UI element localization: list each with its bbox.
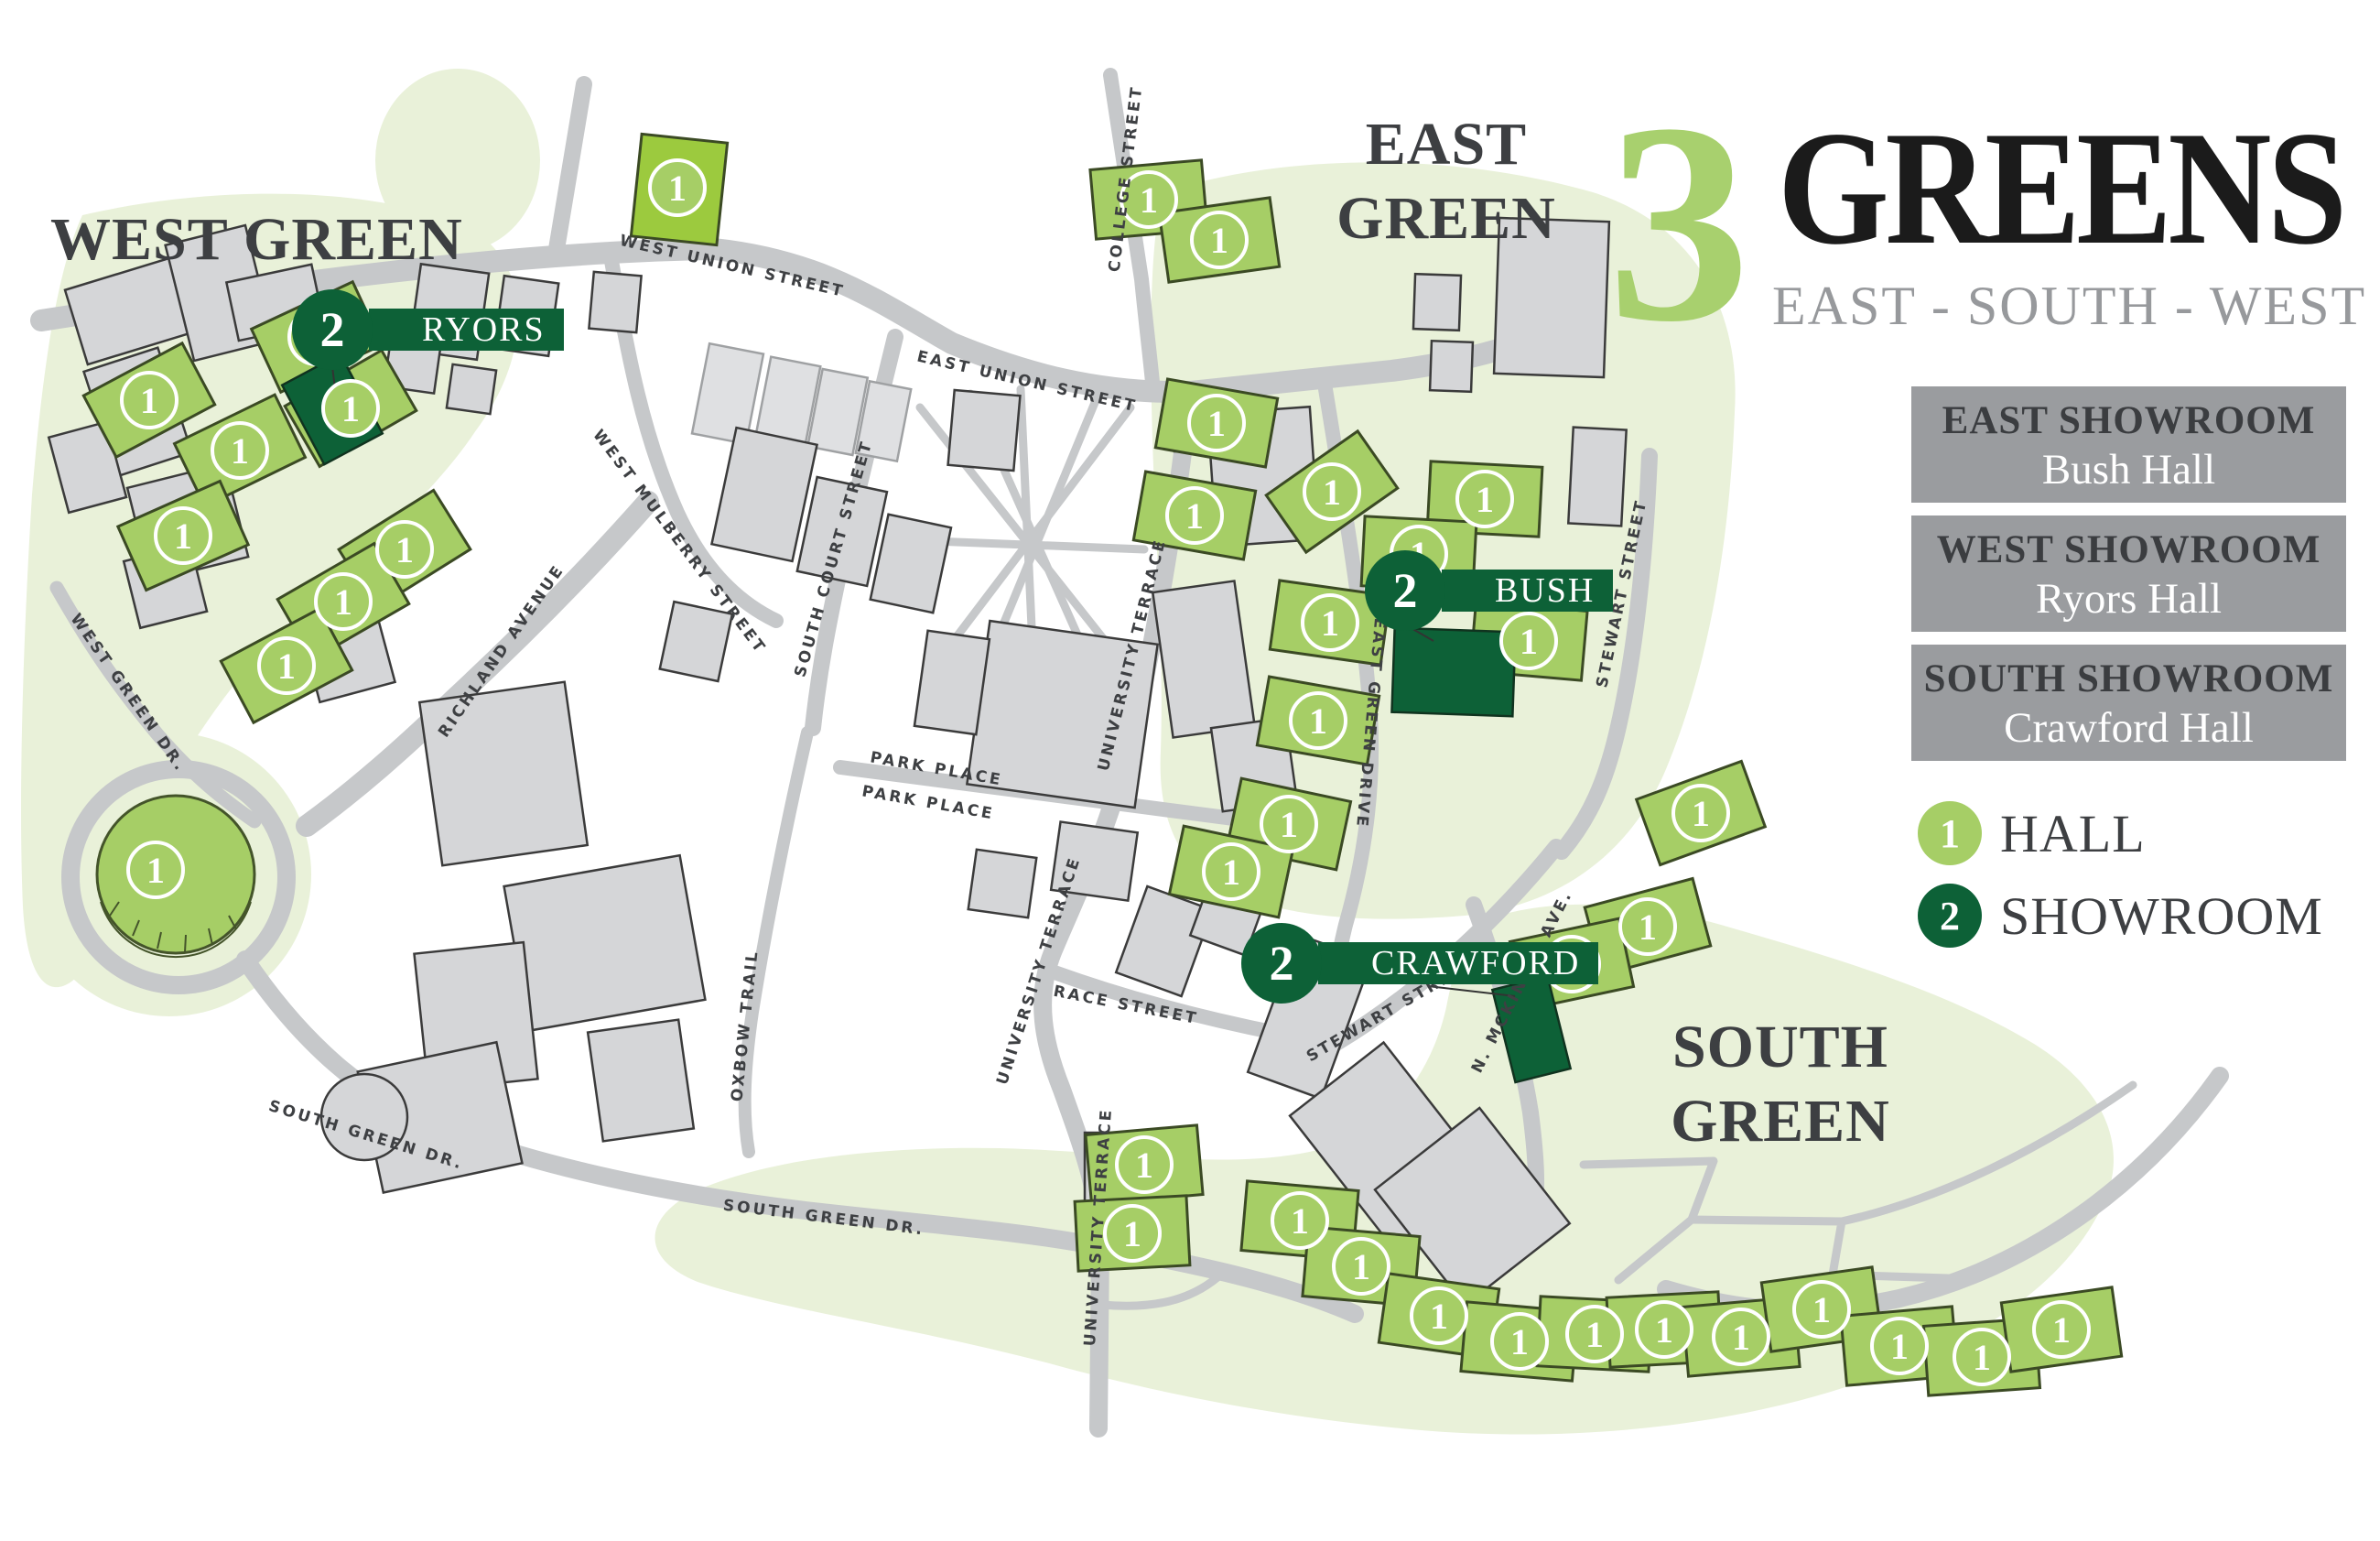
hall-marker-number: 1 (1812, 1289, 1831, 1330)
campus-map-page: 11111111111111111111111111111111111111 W… (0, 0, 2380, 1541)
building-gray (711, 428, 817, 561)
hall-marker-number: 1 (1890, 1326, 1909, 1367)
hall-marker-number: 1 (1732, 1317, 1750, 1358)
region-south-line1: SOUTH (1648, 1011, 1913, 1085)
hall-marker-number: 1 (1140, 179, 1158, 221)
hall-marker-number: 1 (140, 380, 158, 421)
title-word: GREENS (1778, 106, 2343, 269)
badge-label: RYORS (369, 309, 564, 351)
hall-marker-number: 1 (1692, 793, 1710, 834)
region-east-line2: GREEN (1309, 182, 1584, 256)
hall-marker-number: 1 (1352, 1246, 1370, 1287)
hall-marker-number: 1 (1585, 1314, 1604, 1355)
hall-marker-number: 1 (668, 168, 687, 209)
region-east-line1: EAST (1309, 108, 1584, 182)
badge-label: BUSH (1442, 570, 1613, 612)
building-gray (588, 1020, 694, 1142)
region-label-south-green: SOUTH GREEN (1648, 1011, 1913, 1158)
showroom-marker-icon: 2 (1365, 550, 1445, 631)
hall-marker-number: 1 (334, 581, 352, 623)
hall-marker-number: 1 (1280, 804, 1298, 845)
region-west-line1: WEST GREEN (50, 203, 463, 277)
hall-marker-number: 1 (395, 529, 414, 570)
showroom-marker-icon: 2 (292, 289, 373, 370)
hall-marker-number: 1 (341, 388, 360, 429)
hall-marker-number: 1 (1222, 852, 1240, 893)
hall-marker-number: 1 (146, 850, 165, 891)
hall-marker-number: 1 (2052, 1309, 2071, 1351)
title-subtitle: EAST - SOUTH - WEST (1772, 275, 2366, 338)
building-gray (1568, 428, 1626, 526)
hall-marker-number: 1 (231, 430, 249, 472)
region-label-east-green: EAST GREEN (1309, 108, 1584, 255)
building-gray (1430, 341, 1473, 392)
badge-label: CRAWFORD (1318, 942, 1598, 984)
hall-marker-number: 1 (1321, 602, 1339, 644)
hall-marker-number: 1 (1323, 472, 1341, 513)
showroom-box-east: EAST SHOWROOM Bush Hall (1911, 386, 2346, 503)
legend-showroom-label: SHOWROOM (2000, 885, 2323, 947)
title-number: 3 (1607, 81, 1750, 366)
showroom-box-south: SOUTH SHOWROOM Crawford Hall (1911, 645, 2346, 761)
hall-marker-number: 1 (1207, 403, 1226, 444)
hall-marker-number: 1 (1291, 1200, 1309, 1242)
hall-marker-number: 1 (1123, 1213, 1141, 1254)
showroom-box-west: WEST SHOWROOM Ryors Hall (1911, 515, 2346, 632)
road-top-stub (557, 84, 584, 249)
hall-marker-number: 1 (174, 515, 192, 557)
hall-marker-number: 1 (1639, 906, 1657, 948)
showroom-box-hall: Bush Hall (1911, 445, 2346, 494)
region-label-west-green: WEST GREEN (50, 203, 463, 277)
building-gray (914, 631, 990, 734)
hall-marker-number: 1 (1476, 479, 1494, 520)
showroom-marker-icon: 2 (1918, 884, 1982, 948)
building-gray (419, 682, 587, 866)
hall-marker-number: 1 (1973, 1337, 1991, 1378)
legend-hall-label: HALL (2000, 803, 2146, 864)
hall-marker-number: 1 (277, 646, 296, 687)
hall-marker-number: 1 (1135, 1145, 1153, 1186)
showroom-box-title: EAST SHOWROOM (1911, 398, 2346, 443)
building-gray (447, 364, 496, 414)
building-gray (1413, 274, 1461, 331)
showroom-box-title: WEST SHOWROOM (1911, 527, 2346, 572)
hall-marker-number: 1 (1520, 621, 1538, 662)
hall-marker-number: 1 (1210, 220, 1228, 261)
region-south-line2: GREEN (1648, 1085, 1913, 1159)
building-bush-hall (1391, 628, 1515, 717)
legend-row-hall: 1 HALL (1918, 801, 2146, 865)
showroom-marker-icon: 2 (1241, 923, 1322, 1004)
building-gray (948, 390, 1021, 471)
showroom-box-title: SOUTH SHOWROOM (1911, 657, 2346, 701)
showroom-box-hall: Ryors Hall (1911, 574, 2346, 624)
building-gray (1116, 886, 1213, 996)
legend-row-showroom: 2 SHOWROOM (1918, 884, 2323, 948)
hall-marker-number: 1 (1655, 1309, 1673, 1351)
building-gray (504, 855, 706, 1030)
building-gray (589, 272, 641, 332)
hall-marker-number: 1 (1309, 700, 1327, 742)
building-gray (968, 850, 1037, 918)
road-oxbow-trail (745, 733, 807, 1152)
hall-marker-number: 1 (1185, 495, 1204, 537)
showroom-box-hall: Crawford Hall (1911, 703, 2346, 753)
hall-marker-icon: 1 (1918, 801, 1982, 865)
building-gray (871, 515, 951, 613)
hall-marker-number: 1 (1510, 1321, 1529, 1362)
hall-marker-number: 1 (1430, 1296, 1448, 1337)
